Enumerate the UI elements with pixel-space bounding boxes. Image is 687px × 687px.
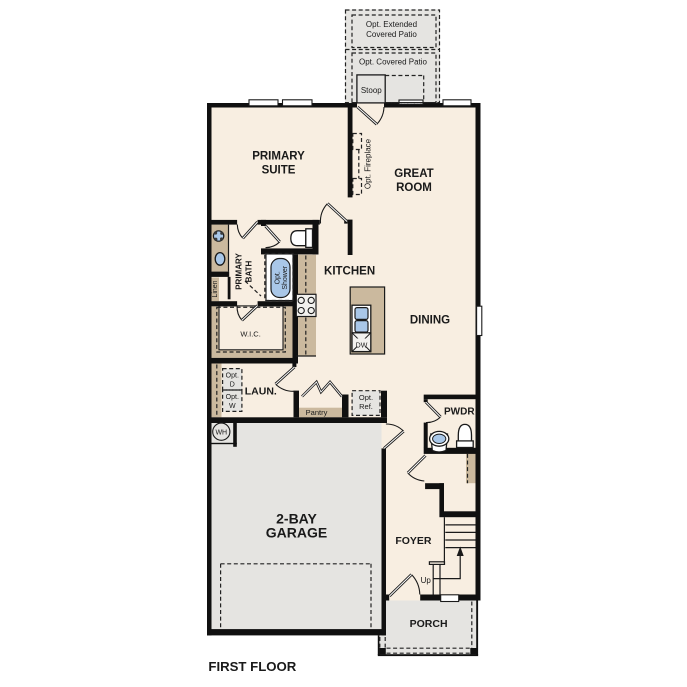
svg-text:LAUN.: LAUN.	[245, 385, 277, 397]
svg-text:GREAT: GREAT	[394, 168, 433, 180]
svg-text:SUITE: SUITE	[262, 164, 296, 176]
svg-text:GARAGE: GARAGE	[266, 524, 327, 540]
svg-text:Pantry: Pantry	[306, 408, 328, 417]
svg-text:PRIMARY: PRIMARY	[252, 150, 305, 162]
svg-text:FIRST FLOOR: FIRST FLOOR	[208, 659, 296, 674]
svg-text:Shower: Shower	[282, 265, 289, 289]
svg-text:W: W	[229, 403, 236, 410]
svg-text:PWDR: PWDR	[444, 406, 475, 417]
svg-text:Stoop: Stoop	[361, 86, 382, 95]
svg-text:BATH: BATH	[245, 260, 254, 282]
svg-text:DW: DW	[356, 343, 368, 350]
svg-text:Opt.: Opt.	[226, 394, 239, 401]
svg-text:WH: WH	[215, 429, 227, 436]
svg-text:ROOM: ROOM	[396, 182, 432, 194]
svg-text:PRIMARY: PRIMARY	[234, 253, 243, 290]
svg-text:Covered Patio: Covered Patio	[366, 30, 417, 39]
svg-text:Opt.: Opt.	[226, 373, 239, 380]
svg-text:FOYER: FOYER	[395, 535, 432, 547]
svg-text:Linen: Linen	[212, 280, 219, 297]
svg-text:Opt.: Opt.	[274, 271, 281, 284]
svg-text:PORCH: PORCH	[410, 618, 448, 630]
svg-text:Opt.: Opt.	[359, 393, 373, 402]
svg-text:DINING: DINING	[410, 315, 450, 327]
svg-text:Opt. Covered Patio: Opt. Covered Patio	[359, 58, 428, 67]
svg-text:D: D	[230, 382, 235, 389]
svg-text:Up: Up	[421, 576, 432, 585]
svg-text:KITCHEN: KITCHEN	[324, 266, 375, 278]
svg-text:Opt. Extended: Opt. Extended	[366, 20, 417, 29]
svg-text:W.I.C.: W.I.C.	[240, 330, 260, 339]
svg-text:Ref.: Ref.	[359, 402, 373, 411]
svg-text:Opt. Fireplace: Opt. Fireplace	[364, 138, 373, 189]
